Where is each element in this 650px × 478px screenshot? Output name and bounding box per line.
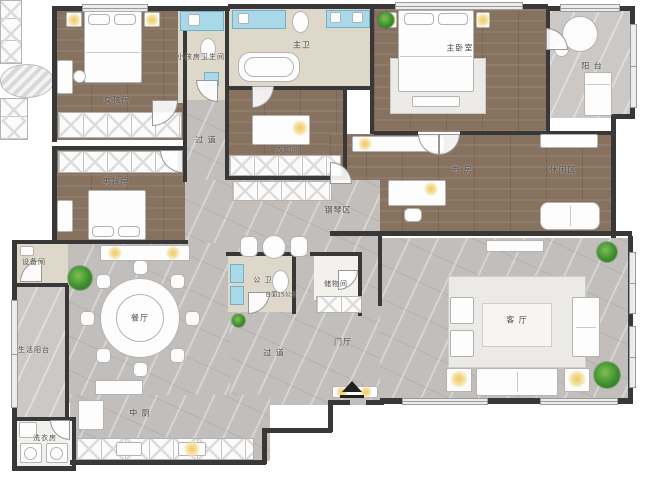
chair <box>170 348 185 363</box>
wall-segment <box>546 8 550 134</box>
bench <box>412 96 460 107</box>
blanket-fold <box>86 52 140 53</box>
potted-plant-icon <box>68 266 92 290</box>
window <box>629 326 636 388</box>
label-hallway-upper: 过 道 <box>195 135 217 146</box>
console-cabinet <box>540 134 598 148</box>
label-dining-room: 餐厅 <box>131 313 149 324</box>
pillow <box>114 14 136 25</box>
chair <box>96 348 111 363</box>
label-piano-area: 钢琴区 <box>325 205 352 216</box>
potted-plant-icon <box>378 12 394 28</box>
storage-cabinets <box>316 296 362 313</box>
chair <box>96 274 111 289</box>
chair <box>80 311 95 326</box>
blanket-fold <box>400 56 472 57</box>
wall-segment <box>262 428 332 433</box>
armchair <box>450 330 474 357</box>
kitchen-sink <box>116 442 142 456</box>
wall-segment <box>183 100 187 182</box>
chair <box>185 311 200 326</box>
lamp-glow-icon <box>108 246 122 260</box>
pillow <box>92 226 114 237</box>
window <box>11 300 18 408</box>
armchair <box>450 297 474 324</box>
bathtub-basin <box>244 57 294 77</box>
kitchen-cabinets <box>0 98 28 140</box>
pillow <box>118 226 140 237</box>
label-foyer: 门厅 <box>334 337 352 348</box>
potted-plant-icon <box>597 242 617 262</box>
lamp-glow-icon <box>292 120 308 136</box>
sink <box>352 12 363 23</box>
lamp-glow-icon <box>145 13 159 27</box>
closet-cabinets <box>0 0 22 64</box>
round-table <box>262 235 286 259</box>
sink <box>330 12 341 23</box>
wall-segment <box>262 428 267 464</box>
sink <box>238 13 249 24</box>
wall-segment <box>292 252 296 314</box>
armchair <box>290 236 308 257</box>
label-balcony: 阳 台 <box>581 61 603 72</box>
closet-cabinets <box>229 155 341 176</box>
tv-console <box>486 240 544 252</box>
wall-segment <box>16 283 68 287</box>
window <box>630 24 637 108</box>
label-master-bathroom: 主卫 <box>293 40 311 51</box>
cushion-line <box>570 206 571 226</box>
label-lounge: 休闲区 <box>550 165 577 176</box>
label-storage-room: 储物间 <box>324 279 348 289</box>
chair <box>170 274 185 289</box>
lamp-glow-icon <box>568 370 586 388</box>
hall-cabinets <box>232 181 332 201</box>
wall-segment <box>228 4 374 9</box>
toilet <box>292 11 309 33</box>
potted-plant-icon <box>232 314 245 327</box>
refrigerator <box>78 400 104 430</box>
wall-segment <box>366 400 384 405</box>
washer-drum <box>24 447 37 460</box>
equipment-box <box>20 246 34 256</box>
wall-segment <box>370 8 374 134</box>
label-laundry-room: 洗衣房 <box>33 433 57 443</box>
oval-rug <box>0 64 54 98</box>
label-girl-room: 女孩房 <box>104 95 131 106</box>
wall-segment <box>70 460 266 465</box>
wall-segment <box>14 466 76 471</box>
wall-segment <box>52 240 188 244</box>
pillow <box>88 14 110 25</box>
window <box>540 398 618 405</box>
label-walk-in-closet: 衣帽间 <box>276 145 300 155</box>
label-living-room: 客 厅 <box>506 315 528 326</box>
label-guest-bathroom: 公 卫 <box>253 275 272 285</box>
lamp-glow-icon <box>166 246 180 260</box>
entry-arrow-bar <box>340 395 364 398</box>
lamp-glow-icon <box>450 370 468 388</box>
label-study: 书 房 <box>451 165 473 176</box>
desk <box>57 200 73 232</box>
desk <box>388 180 446 206</box>
pillow <box>404 13 434 25</box>
label-kids-bathroom: 小孩房卫生间 <box>177 52 225 62</box>
wall-segment <box>378 236 382 306</box>
lamp-glow-icon <box>184 441 200 457</box>
kitchen-counter <box>76 438 254 460</box>
cushion-line <box>517 372 518 392</box>
label-master-bedroom: 主卧室 <box>447 43 474 54</box>
sink <box>230 264 244 283</box>
chair <box>133 362 148 377</box>
lounge-line <box>586 84 610 85</box>
wall-segment <box>226 252 296 256</box>
label-kitchen: 中 厨 <box>129 408 151 419</box>
lamp-glow-icon <box>358 137 372 151</box>
window <box>402 398 488 405</box>
wall-segment <box>228 86 372 90</box>
wall-segment <box>374 131 418 135</box>
palm-plant-icon <box>594 362 620 388</box>
dryer-drum <box>50 447 63 460</box>
window <box>395 2 523 10</box>
cushion-line <box>576 327 596 328</box>
label-service-balcony: 生活阳台 <box>18 345 50 355</box>
wall-segment <box>330 231 632 236</box>
chair <box>133 260 148 275</box>
wall-segment <box>310 252 362 256</box>
vanity-counter <box>180 11 224 31</box>
window <box>629 252 636 314</box>
lamp-glow-icon <box>424 182 438 196</box>
wall-segment <box>65 285 69 420</box>
pillow <box>438 13 468 25</box>
desk <box>57 60 73 94</box>
entry-arrow-icon <box>342 381 362 392</box>
sink <box>188 14 200 26</box>
label-vanity-note: 台面15公分 <box>265 290 297 299</box>
chair <box>73 70 86 83</box>
lounge-chair <box>584 72 612 116</box>
bench <box>95 380 143 395</box>
lamp-glow-icon <box>476 13 490 27</box>
floor-plan: 女孩房 小孩房卫生间 主卫 主卧室 阳 台 过 道 衣帽间 男孩房 书 房 休闲… <box>0 0 650 478</box>
chair <box>404 208 422 222</box>
label-equipment-room: 设备间 <box>22 257 46 267</box>
lamp-glow-icon <box>67 13 81 27</box>
sink <box>230 286 244 305</box>
armchair <box>240 236 258 257</box>
window <box>560 4 620 12</box>
label-hallway-lower: 过 道 <box>263 348 285 359</box>
label-boy-room: 男孩房 <box>103 177 130 188</box>
